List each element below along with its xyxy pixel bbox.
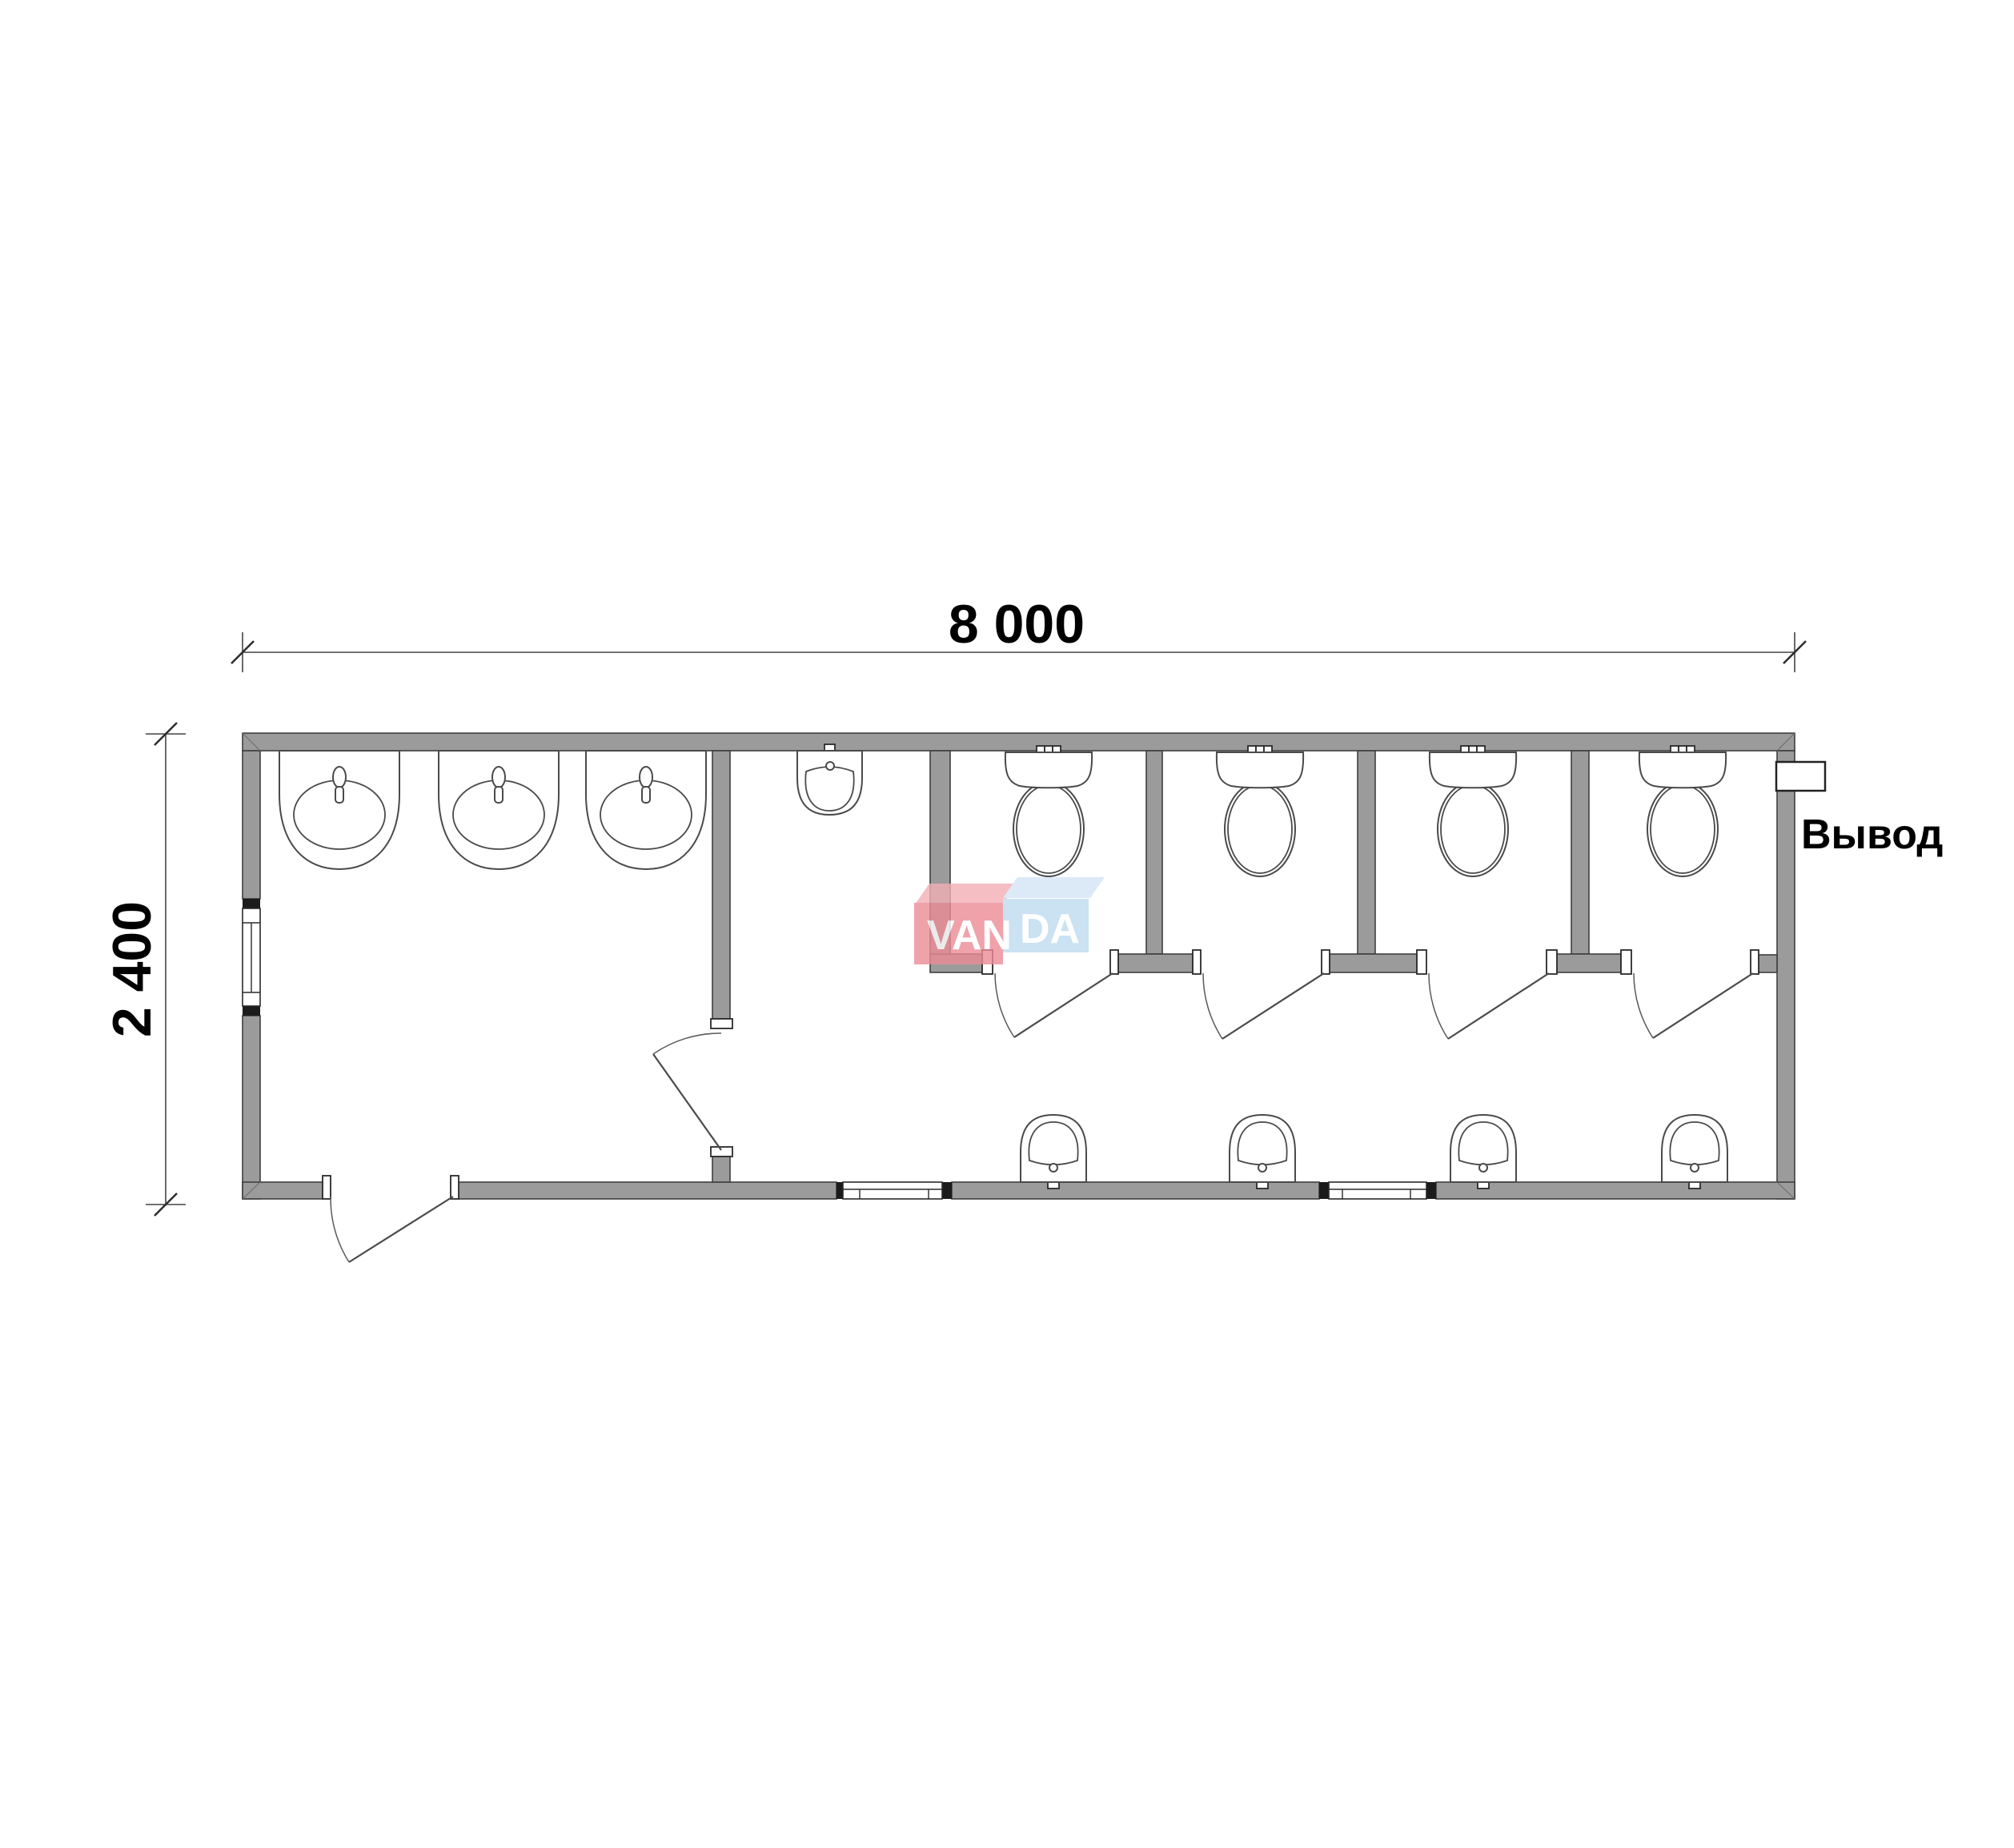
hand-basin-icon-1: [1021, 1115, 1086, 1189]
stall-partition-3: [1322, 751, 1426, 974]
washbasin-icon-1: [279, 751, 399, 869]
utility-outlet: Вывод: [1776, 762, 1943, 858]
stall-door-2: [1203, 973, 1324, 1039]
dimension-width-label: 8 000: [949, 594, 1085, 655]
logo-text-left: VAN: [927, 912, 1012, 959]
stall-wall-stub-right: [1751, 950, 1777, 974]
toilet-icon-4: [1639, 746, 1726, 876]
entrance-door: [323, 1176, 459, 1262]
outlet-label: Вывод: [1801, 812, 1943, 858]
hand-basin-icon-4: [1662, 1115, 1727, 1189]
logo-red-box-top: [915, 884, 1017, 904]
stall-partition-2: [1110, 751, 1201, 974]
stall-door-1: [995, 973, 1113, 1037]
logo-text-right: DA: [1020, 906, 1080, 952]
washbasin-icon-2: [439, 751, 559, 869]
window-bottom-2: [1319, 1182, 1436, 1199]
dimension-height: 2 400: [102, 723, 186, 1216]
toilet-icon-3: [1430, 746, 1516, 876]
toilet-icon-2: [1217, 746, 1303, 876]
stall-partition-4: [1547, 751, 1631, 974]
vanda-logo: VAN DA: [914, 877, 1105, 964]
stall-door-4: [1634, 973, 1753, 1038]
hand-basin-icon-3: [1450, 1115, 1516, 1189]
dimension-width: 8 000: [231, 594, 1806, 672]
window-bottom-1: [836, 1182, 952, 1199]
urinal-icon: [797, 744, 862, 815]
stall-door-3: [1429, 973, 1549, 1039]
dimension-height-label: 2 400: [102, 901, 162, 1037]
hand-basin-icon-2: [1230, 1115, 1295, 1189]
washroom-door: [653, 1033, 721, 1150]
toilet-icon-1: [1005, 746, 1092, 876]
window-left: [243, 899, 260, 1016]
logo-blue-box-top: [1003, 877, 1105, 898]
outlet-port: [1776, 762, 1825, 791]
washbasin-icon-3: [586, 751, 706, 869]
floor-plan-canvas: 8 000 2 400: [0, 0, 2014, 1848]
washroom-partition-wall: [711, 751, 732, 1182]
